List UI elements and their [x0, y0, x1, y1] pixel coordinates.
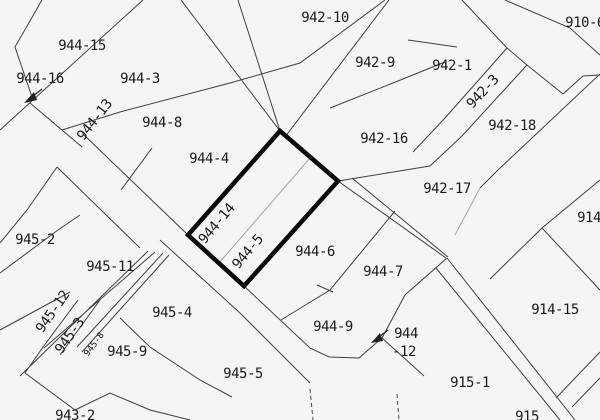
parcel-label-944-9: 944-9	[313, 320, 353, 334]
parcel-label-915: 915	[515, 410, 539, 420]
parcel-label-944-4: 944-4	[189, 152, 229, 166]
parcel-label-914-15: 914-15	[531, 303, 579, 317]
parcel-label-943-2: 943-2	[55, 409, 95, 420]
parcel-label-910-6: 910-6	[565, 16, 600, 30]
parcel-label-945-11: 945-11	[86, 260, 134, 274]
cadastral-map: 942-10 910-6 944-15 944-16 944-3 942-9 9…	[0, 0, 600, 420]
parcel-label-945-2: 945-2	[15, 233, 55, 247]
parcel-label-915-1: 915-1	[450, 376, 490, 390]
parcel-label-944-12-line1: 944	[394, 327, 418, 341]
parcel-label-945-5: 945-5	[223, 367, 263, 381]
dashed-boundary-lines	[310, 389, 399, 420]
parcel-label-945-9: 945-9	[107, 345, 147, 359]
parcel-label-942-9: 942-9	[355, 56, 395, 70]
parcel-label-944-16: 944-16	[16, 72, 64, 86]
parcel-label-945-4: 945-4	[152, 306, 192, 320]
parcel-label-944-3: 944-3	[120, 72, 160, 86]
parcel-label-944-7: 944-7	[363, 265, 403, 279]
parcel-label-944-15: 944-15	[58, 39, 106, 53]
parcel-label-914: 914	[577, 211, 600, 225]
parcel-label-942-18: 942-18	[488, 119, 536, 133]
parcel-label-942-16: 942-16	[360, 132, 408, 146]
parcel-label-944-6: 944-6	[295, 245, 335, 259]
parcel-label-944-12-line2: -12	[392, 345, 416, 359]
parcel-label-942-1: 942-1	[432, 59, 472, 73]
pointer-arrow-944-16	[24, 89, 42, 103]
parcel-label-942-10: 942-10	[301, 11, 349, 25]
parcel-label-944-8: 944-8	[142, 116, 182, 130]
parcel-label-942-17: 942-17	[423, 182, 471, 196]
